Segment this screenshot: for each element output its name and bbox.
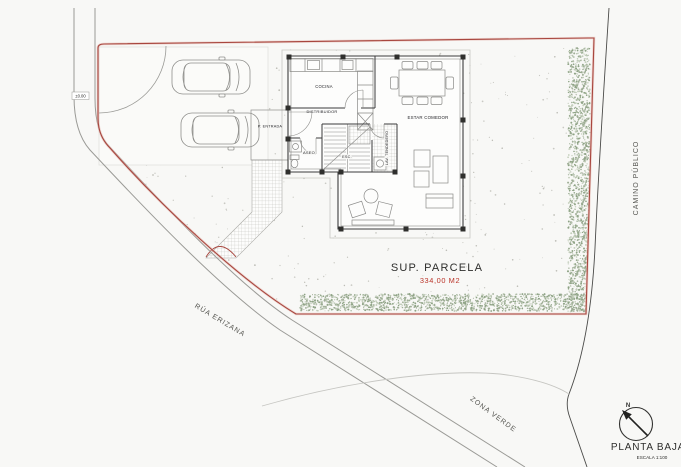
car-icon-2 xyxy=(181,110,259,150)
site-plan-sheet: ±0.00 xyxy=(0,0,681,467)
street-label-west: RÚA ERIZANA xyxy=(193,301,247,338)
hedge-bottom xyxy=(299,293,585,312)
room-label-stairs: ESC. xyxy=(342,155,352,159)
parcel-surface-label: SUP. PARCELA xyxy=(391,262,483,274)
room-label-toilet: ASEO xyxy=(303,150,315,155)
room-label-entry-porch: P. ENTRADA xyxy=(258,125,283,129)
parcel-surface-annotation: SUP. PARCELA 334,00 M2 xyxy=(391,262,483,285)
zona-verde-line xyxy=(262,373,569,406)
level-marker: ±0.00 xyxy=(72,92,89,100)
room-label-kitchen: COCINA xyxy=(315,84,333,89)
zona-verde-label: ZONA VERDE xyxy=(469,396,518,434)
drawing-scale: ESCALA 1:100 xyxy=(637,455,668,460)
walkway xyxy=(206,160,282,258)
title-block: N PLANTA BAJA ESCALA 1:100 xyxy=(611,403,681,460)
north-label: N xyxy=(626,403,630,409)
driveway xyxy=(99,46,268,165)
parcel-surface-value: 334,00 M2 xyxy=(420,276,460,285)
house: COCINA DISTRIBUIDOR ESTAR COMEDOR ASEO E… xyxy=(251,50,470,238)
level-marker-label: ±0.00 xyxy=(75,94,86,99)
room-label-laundry: LAV. TENDEDERO xyxy=(385,131,389,165)
drawing-title: PLANTA BAJA xyxy=(611,442,681,453)
car-icon-1 xyxy=(172,57,250,97)
site-plan-drawing: ±0.00 xyxy=(0,0,681,467)
north-needle xyxy=(629,417,648,436)
street-label-east: CAMINO PÚBLICO xyxy=(631,141,640,216)
room-label-living-dining: ESTAR COMEDOR xyxy=(407,115,448,120)
room-label-hall: DISTRIBUIDOR xyxy=(306,109,337,114)
